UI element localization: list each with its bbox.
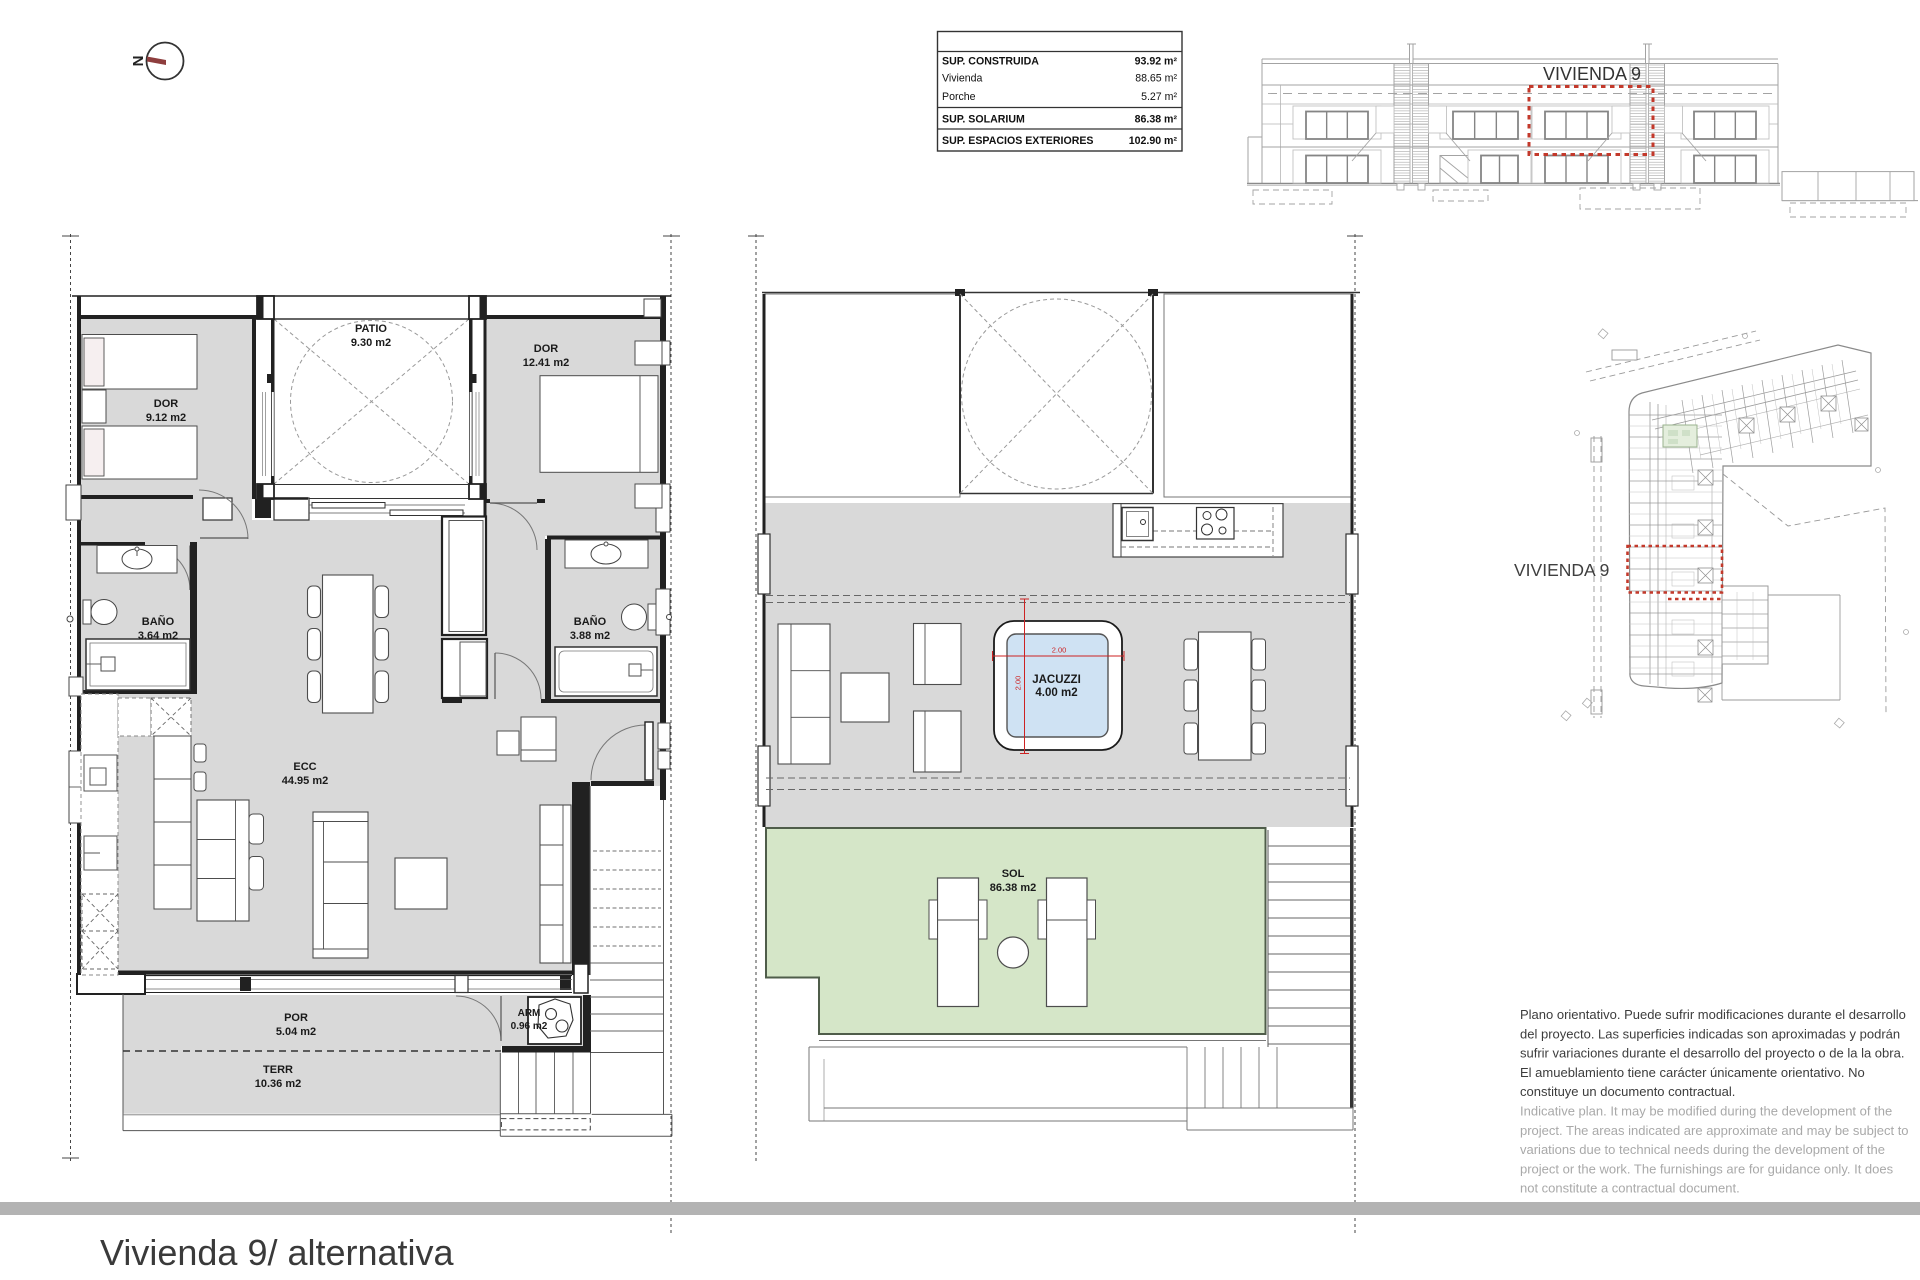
svg-text:44.95 m2: 44.95 m2: [282, 775, 328, 787]
svg-text:4.00 m2: 4.00 m2: [1035, 687, 1077, 699]
svg-text:93.92 m²: 93.92 m²: [1135, 56, 1178, 68]
svg-text:project or the work. The furni: project or the work. The furnishings are…: [1520, 1161, 1894, 1176]
svg-text:sufrir variaciones durante el: sufrir variaciones durante el desarrollo…: [1520, 1046, 1904, 1061]
svg-text:SUP. SOLARIUM: SUP. SOLARIUM: [942, 114, 1025, 126]
svg-text:86.38 m²: 86.38 m²: [1135, 114, 1178, 126]
svg-text:Vivienda: Vivienda: [942, 73, 983, 85]
svg-text:DOR: DOR: [154, 398, 179, 410]
svg-text:SUP. CONSTRUIDA: SUP. CONSTRUIDA: [942, 56, 1039, 68]
svg-text:3.64 m2: 3.64 m2: [138, 630, 178, 642]
svg-text:BAÑO: BAÑO: [574, 615, 607, 628]
svg-text:constituye un documento contra: constituye un documento contractual.: [1520, 1084, 1735, 1099]
svg-text:project. The areas indicated a: project. The areas indicated are approxi…: [1520, 1123, 1909, 1138]
svg-text:10.36 m2: 10.36 m2: [255, 1078, 301, 1090]
svg-text:ECC: ECC: [293, 761, 316, 773]
svg-text:PATIO: PATIO: [355, 323, 387, 335]
svg-text:3.88 m2: 3.88 m2: [570, 630, 610, 642]
svg-text:5.04 m2: 5.04 m2: [276, 1026, 316, 1038]
svg-text:Porche: Porche: [942, 91, 976, 103]
svg-text:DOR: DOR: [534, 343, 559, 355]
svg-text:86.38 m2: 86.38 m2: [990, 882, 1036, 894]
svg-text:9.30 m2: 9.30 m2: [351, 337, 391, 349]
svg-text:2.00: 2.00: [1052, 646, 1067, 655]
svg-text:JACUZZI: JACUZZI: [1032, 674, 1081, 686]
svg-text:TERR: TERR: [263, 1064, 293, 1076]
svg-text:variations due to technical ne: variations due to technical needs during…: [1520, 1142, 1885, 1157]
svg-text:5.27 m²: 5.27 m²: [1141, 91, 1177, 103]
svg-text:VIVIENDA 9: VIVIENDA 9: [1543, 64, 1641, 84]
svg-text:2.00: 2.00: [1014, 676, 1023, 691]
svg-text:9.12 m2: 9.12 m2: [146, 412, 186, 424]
svg-text:88.65 m²: 88.65 m²: [1135, 73, 1177, 85]
svg-text:POR: POR: [284, 1012, 308, 1024]
svg-text:0.96 m2: 0.96 m2: [511, 1021, 548, 1032]
svg-text:SUP. ESPACIOS EXTERIORES: SUP. ESPACIOS EXTERIORES: [942, 135, 1094, 147]
svg-text:N: N: [130, 56, 147, 67]
svg-text:ARM: ARM: [518, 1008, 541, 1019]
svg-text:BAÑO: BAÑO: [142, 615, 175, 628]
svg-text:VIVIENDA 9: VIVIENDA 9: [1514, 560, 1609, 580]
svg-text:El amueblamiento tiene carácte: El amueblamiento tiene carácter únicamen…: [1520, 1065, 1865, 1080]
svg-text:del proyecto. Las superficies: del proyecto. Las superficies indicadas …: [1520, 1026, 1900, 1041]
svg-text:not constitute a contractual d: not constitute a contractual document.: [1520, 1181, 1740, 1196]
svg-text:Vivienda 9/ alternativa: Vivienda 9/ alternativa: [100, 1232, 455, 1273]
svg-text:102.90 m²: 102.90 m²: [1129, 135, 1178, 147]
svg-text:12.41 m2: 12.41 m2: [523, 357, 569, 369]
svg-text:Indicative plan. It may be mod: Indicative plan. It may be modified duri…: [1520, 1104, 1892, 1119]
svg-text:SOL: SOL: [1002, 868, 1025, 880]
svg-text:Plano orientativo. Puede sufri: Plano orientativo. Puede sufrir modifica…: [1520, 1007, 1906, 1022]
